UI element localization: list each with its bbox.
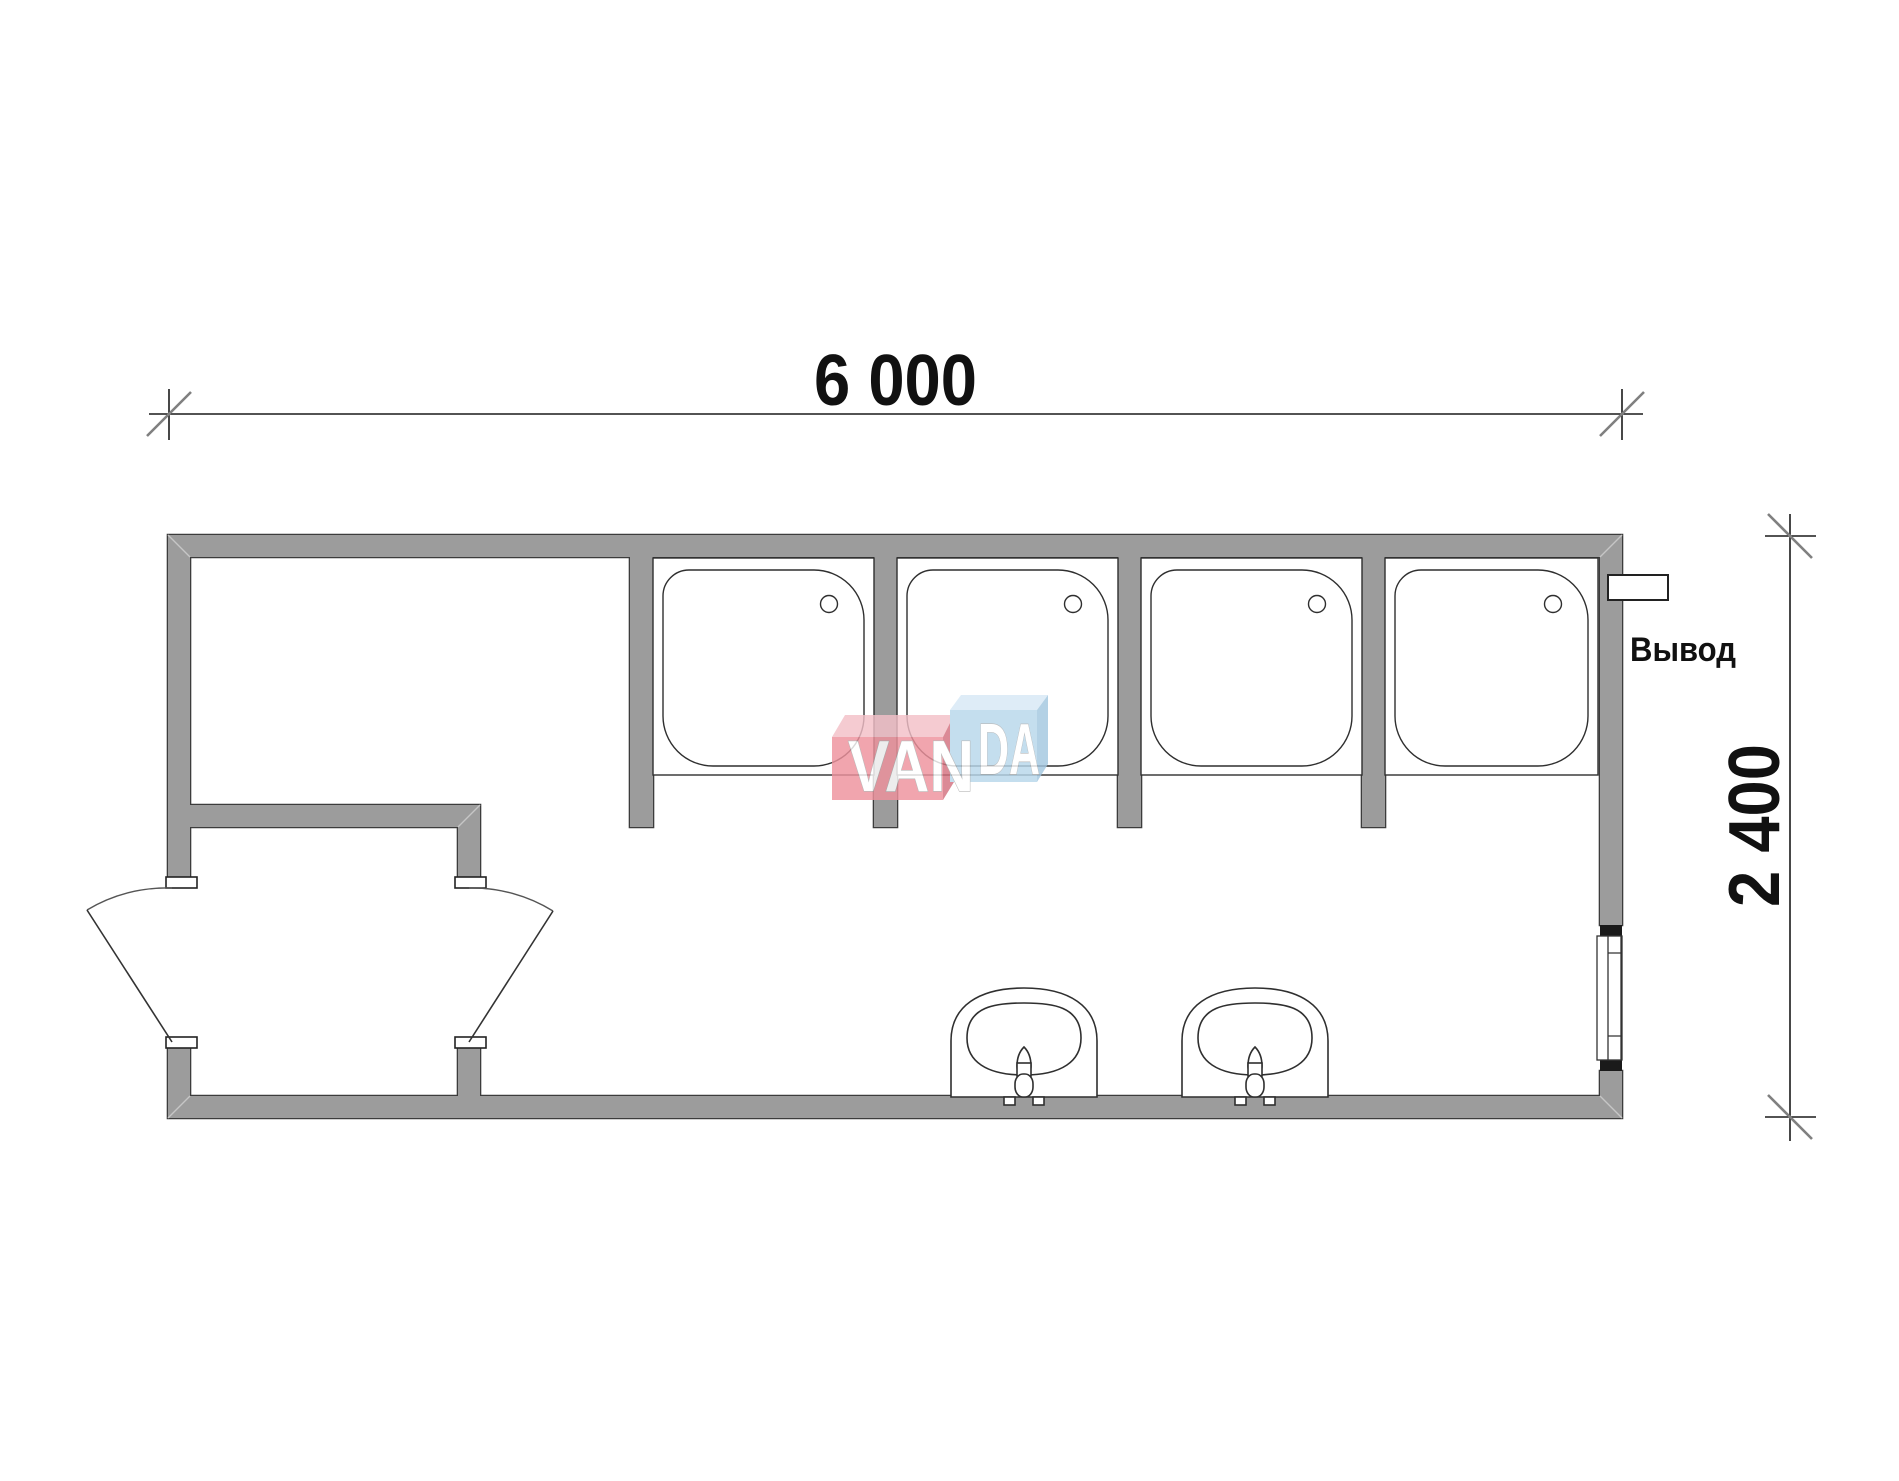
faucet-base bbox=[1246, 1074, 1264, 1097]
window-frame bbox=[1608, 936, 1621, 1060]
floor-plan-drawing: 6 000 2 400 Вывод VAN DA bbox=[0, 0, 1899, 1481]
entrance-door-jamb-top bbox=[166, 877, 197, 888]
dimension-height: 2 400 bbox=[1715, 514, 1816, 1141]
vestibule-door bbox=[469, 888, 553, 1042]
mount-tab bbox=[1264, 1097, 1275, 1105]
mount-tab bbox=[1235, 1097, 1246, 1105]
shower-tray-4 bbox=[1385, 558, 1598, 775]
drain-icon bbox=[1065, 596, 1082, 613]
window bbox=[1597, 925, 1622, 1071]
washbasin-1 bbox=[951, 988, 1097, 1105]
drain-icon bbox=[821, 596, 838, 613]
door-swing-arc bbox=[87, 888, 172, 910]
door-swing-arc bbox=[469, 888, 553, 911]
shower-tray-3 bbox=[1141, 558, 1362, 775]
washbasins bbox=[951, 988, 1328, 1105]
faucet-base bbox=[1015, 1074, 1033, 1097]
window-cap-bottom bbox=[1600, 1060, 1622, 1071]
vestibule-door-jamb-top bbox=[455, 877, 486, 888]
floor-plan-canvas: 6 000 2 400 Вывод VAN DA bbox=[0, 0, 1899, 1481]
drain-icon bbox=[1545, 596, 1562, 613]
window-cap-top bbox=[1600, 925, 1622, 936]
logo-blue-top-face bbox=[950, 695, 1048, 710]
washbasin-2 bbox=[1182, 988, 1328, 1105]
mount-tab bbox=[1004, 1097, 1015, 1105]
door-jambs bbox=[166, 877, 486, 1048]
outlet-label: Вывод bbox=[1630, 631, 1736, 669]
doors bbox=[87, 888, 553, 1042]
drain-icon bbox=[1309, 596, 1326, 613]
dimension-width: 6 000 bbox=[147, 341, 1644, 440]
logo-text-left: VAN bbox=[848, 727, 974, 807]
door-leaf bbox=[469, 911, 553, 1042]
outlet-stub bbox=[1608, 575, 1668, 600]
mount-tab bbox=[1033, 1097, 1044, 1105]
entrance-door bbox=[87, 888, 172, 1042]
logo-text-right: DA bbox=[978, 710, 1040, 790]
dimension-height-label: 2 400 bbox=[1715, 744, 1795, 907]
dimension-width-label: 6 000 bbox=[814, 341, 977, 421]
door-leaf bbox=[87, 910, 172, 1042]
